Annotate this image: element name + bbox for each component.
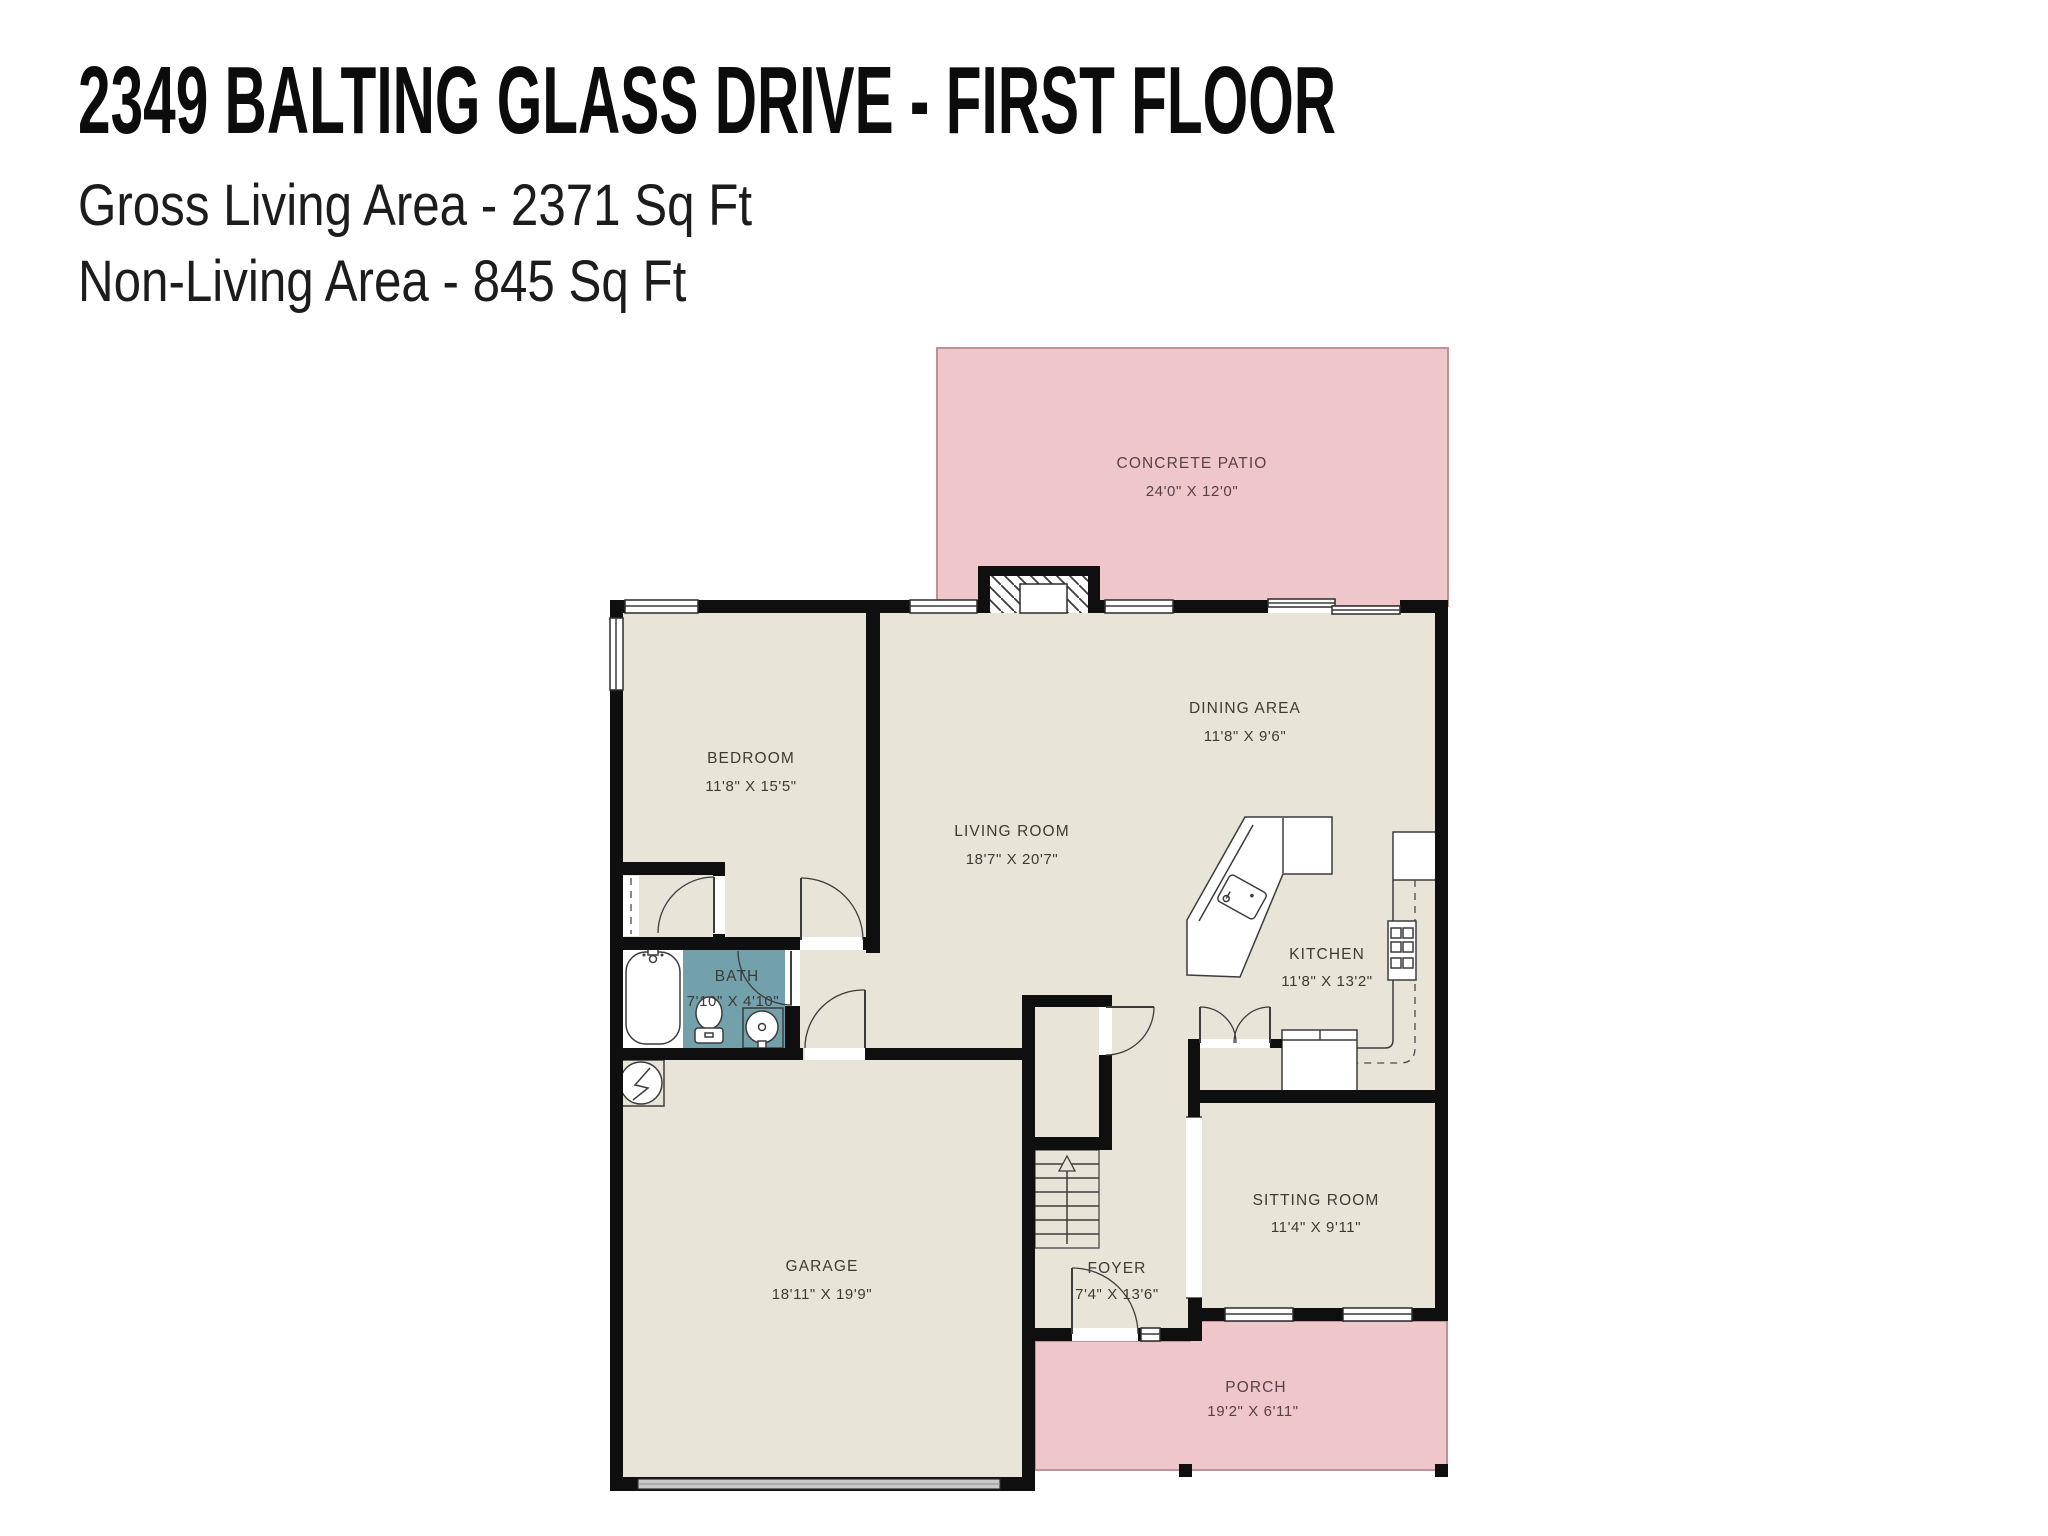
svg-text:FOYER: FOYER: [1088, 1260, 1147, 1277]
porch-area: [1035, 1321, 1448, 1477]
svg-text:7'4" X 13'6": 7'4" X 13'6": [1075, 1286, 1159, 1303]
svg-text:11'8" X 15'5": 11'8" X 15'5": [705, 778, 796, 795]
svg-text:19'2" X 6'11": 19'2" X 6'11": [1207, 1403, 1298, 1420]
svg-text:11'4" X 9'11": 11'4" X 9'11": [1271, 1219, 1361, 1236]
svg-text:11'8" X 9'6": 11'8" X 9'6": [1204, 728, 1287, 745]
svg-text:PORCH: PORCH: [1225, 1379, 1286, 1396]
svg-text:18'11" X 19'9": 18'11" X 19'9": [772, 1286, 872, 1303]
fireplace-icon: [978, 566, 1100, 613]
svg-text:BEDROOM: BEDROOM: [707, 750, 795, 767]
refrigerator-icon: [1282, 1030, 1357, 1092]
window-icon: [1343, 1308, 1412, 1321]
svg-text:DINING AREA: DINING AREA: [1189, 700, 1301, 717]
cased-opening: [1186, 1117, 1202, 1298]
floor-plan-page: 2349 BALTING GLASS DRIVE - FIRST FLOOR G…: [0, 0, 2048, 1536]
bathtub-icon: [626, 949, 680, 1044]
sidelite-window-icon: [1141, 1328, 1160, 1341]
svg-text:CONCRETE PATIO: CONCRETE PATIO: [1117, 455, 1268, 472]
window-icon: [610, 618, 623, 690]
svg-text:KITCHEN: KITCHEN: [1289, 946, 1365, 963]
svg-text:24'0" X 12'0": 24'0" X 12'0": [1146, 483, 1239, 500]
window-icon: [625, 600, 698, 613]
garage-door: [638, 1479, 1000, 1489]
svg-text:BATH: BATH: [715, 968, 760, 985]
svg-text:7'10" X 4'10": 7'10" X 4'10": [687, 993, 780, 1010]
staircase: [1035, 1150, 1099, 1248]
svg-text:LIVING ROOM: LIVING ROOM: [954, 823, 1069, 840]
porch-post: [1435, 1464, 1448, 1477]
range-icon: [1388, 921, 1416, 980]
svg-text:11'8" X 13'2": 11'8" X 13'2": [1281, 973, 1372, 990]
window-icon: [1225, 1308, 1293, 1321]
svg-text:GARAGE: GARAGE: [786, 1258, 859, 1275]
window-icon: [910, 600, 977, 613]
svg-text:18'7" X 20'7": 18'7" X 20'7": [966, 851, 1059, 868]
window-icon: [1105, 600, 1173, 613]
svg-text:SITTING ROOM: SITTING ROOM: [1253, 1192, 1380, 1209]
porch-post: [1179, 1464, 1192, 1477]
floor-plan-svg: CONCRETE PATIO 24'0" X 12'0" BEDROOM 11'…: [0, 0, 2048, 1536]
